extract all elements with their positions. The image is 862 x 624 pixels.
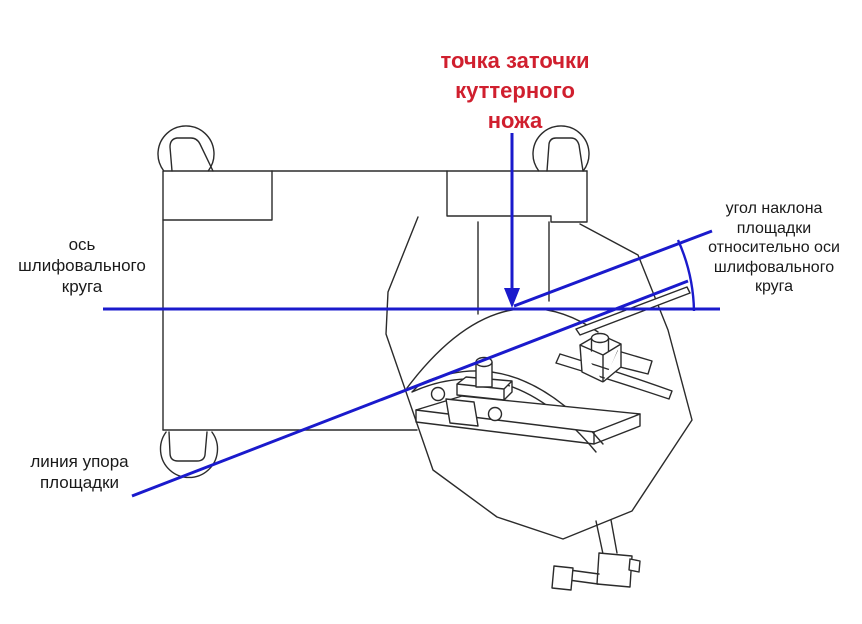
adjustment-bolt [552,520,640,590]
platform-notch [446,399,478,426]
body-top-right-panel [447,171,587,222]
support-line-label: линия упора площадки [2,451,157,493]
wheel-axis-label: ось шлифовального круга [2,234,162,297]
body-top-left-panel [163,171,272,220]
top-left-foot-ring [158,126,214,171]
clamp-pin-top [592,334,609,343]
adjust-block [597,553,632,587]
bottom-left-foot [169,432,207,461]
platform-angle-label: угол наклона площадки относительно оси ш… [686,199,862,297]
wheel-cover-outline [386,217,692,539]
diagram-canvas: точка заточки куттерного ножа ось шлифов… [0,0,862,624]
support-line [132,281,688,496]
top-left-foot [170,138,213,171]
screw-head-left [432,388,445,401]
adjust-tab [629,559,640,572]
platform-assembly [412,287,690,452]
top-right-foot [547,138,583,171]
adjust-cap [552,566,573,590]
grinding-wheel-arc [407,308,598,388]
screw-head-right [489,408,502,421]
sharpening-point-title: точка заточки куттерного ножа [375,46,655,136]
adjust-shaft [596,520,617,554]
cutter-knife-blade [576,287,690,335]
